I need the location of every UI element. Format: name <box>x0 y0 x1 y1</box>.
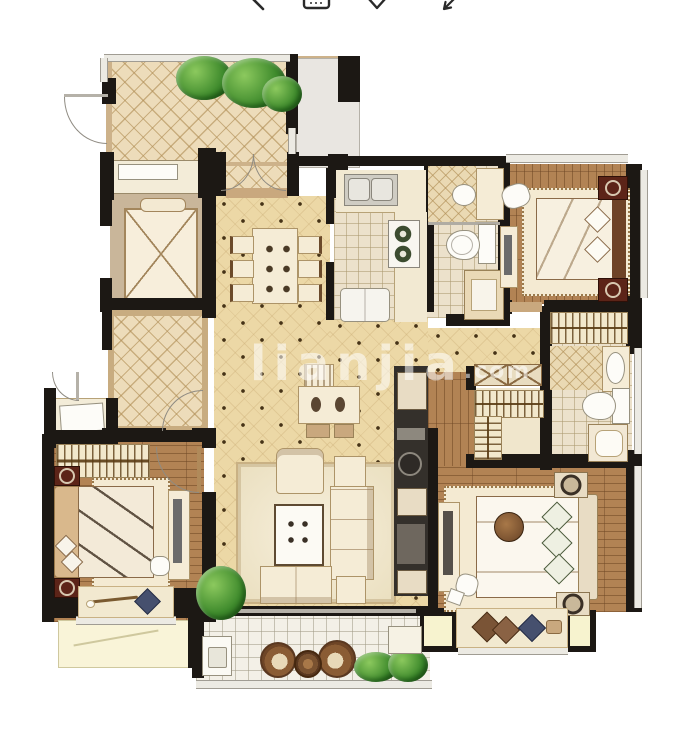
toilet-bowl-2 <box>582 392 616 420</box>
wall-segment <box>428 428 438 612</box>
back-icon[interactable] <box>252 0 263 9</box>
share-arrow-icon[interactable] <box>444 0 455 9</box>
round-chair <box>260 642 296 678</box>
nightstand <box>598 176 628 200</box>
bedroom3-chair <box>150 556 170 576</box>
x-cabinet-cell <box>474 364 508 386</box>
walkin-rack-top <box>474 390 544 418</box>
media-shelf <box>397 488 427 516</box>
heart-icon[interactable] <box>369 0 385 8</box>
wall-segment <box>46 430 216 442</box>
bedroom3-desk-strip <box>173 499 182 563</box>
porch-mat <box>59 402 105 433</box>
toolbar-fragment <box>0 0 690 14</box>
wall-segment <box>100 152 114 200</box>
walkin-rack-left <box>474 416 502 460</box>
nightstand-lamp <box>605 180 621 196</box>
media-shelf <box>397 428 425 440</box>
tea-table <box>298 386 360 424</box>
terrace-left-window <box>100 58 108 82</box>
tea-chair <box>304 364 334 388</box>
bedroom2-desk-strip <box>443 511 453 575</box>
washbasin <box>452 184 476 206</box>
dining-chair <box>230 260 254 278</box>
wall-segment <box>326 262 334 320</box>
closet-hangers <box>550 312 628 344</box>
nightstand-lamp <box>561 475 582 496</box>
toilet-bowl-inner <box>451 235 473 255</box>
nightstand-lamp <box>59 468 75 484</box>
media-wall <box>394 366 428 596</box>
bath-cabinet <box>464 270 504 320</box>
wall-segment <box>202 150 216 318</box>
bedroom1-bed <box>536 198 616 280</box>
foyer-cabinet <box>118 164 178 180</box>
stove-burner <box>394 245 412 263</box>
washbasin-2 <box>606 352 625 384</box>
bedroom1-headboard <box>612 196 626 280</box>
wall-segment <box>102 298 214 310</box>
speaker-icon <box>398 452 422 476</box>
bathroom2-right-window <box>634 348 642 454</box>
stove <box>388 220 420 268</box>
wall-segment <box>202 430 216 448</box>
window-box <box>424 616 452 646</box>
balcony-sliding-door <box>214 609 416 613</box>
bedroom2-headboard <box>578 494 598 600</box>
door-arc <box>52 372 79 401</box>
nightstand-lamp <box>59 580 75 596</box>
wicker-decor <box>494 512 524 542</box>
door-leaf <box>197 447 201 492</box>
bedroom1-desk-strip <box>504 235 512 275</box>
toilet-bowl <box>446 230 480 260</box>
sink-basin <box>371 178 393 201</box>
balcony-cabinet <box>388 626 422 654</box>
nightstand <box>54 466 80 486</box>
round-chair <box>318 640 356 678</box>
washer-drum <box>208 647 227 668</box>
tea-cup <box>311 397 321 412</box>
balcony-bottom-window <box>196 680 432 689</box>
wall-segment <box>102 312 112 350</box>
tea-bench <box>306 424 330 438</box>
media-shelf <box>397 372 427 410</box>
nightstand-2 <box>554 472 588 498</box>
door-leaf <box>76 372 79 400</box>
dining-chair <box>230 284 254 302</box>
washbasin-counter <box>476 168 504 220</box>
bedroom3-desk <box>168 490 190 580</box>
bedroom1-right-window <box>640 170 648 298</box>
door-leaf <box>64 94 108 97</box>
shell-decor <box>86 600 95 608</box>
ottoman <box>334 456 366 488</box>
side-table <box>336 576 366 604</box>
tea-bench <box>334 424 354 438</box>
door-arc <box>64 97 107 144</box>
dining-chair <box>298 284 322 302</box>
window-box <box>570 616 590 646</box>
dining-table <box>252 228 298 304</box>
loveseat <box>260 566 332 604</box>
dining-chair <box>298 260 322 278</box>
wall-segment <box>100 196 112 226</box>
round-table <box>294 650 322 678</box>
tv-screen <box>397 524 425 564</box>
armchair <box>276 448 324 494</box>
bay-basket <box>546 620 562 634</box>
terrace-right-window <box>288 128 296 154</box>
kitchen-sink <box>344 174 398 206</box>
bedroom1-top-window <box>506 154 628 163</box>
shower-area-2 <box>550 346 602 390</box>
nightstand-lamp <box>605 282 621 298</box>
bedroom3-bed <box>78 486 154 578</box>
dining-chair <box>230 236 254 254</box>
dining-chair <box>298 236 322 254</box>
wall-segment <box>338 56 360 102</box>
nightstand <box>598 278 628 302</box>
terrace-plant <box>262 76 302 112</box>
wall-segment <box>326 168 334 224</box>
media-shelf <box>397 570 427 594</box>
sofa <box>330 486 374 580</box>
ac-platform <box>58 620 192 668</box>
coffee-table <box>274 504 324 566</box>
dining-table-settings <box>257 235 291 295</box>
x-cabinet-cell <box>508 364 542 386</box>
bath-cabinet-inner <box>471 279 497 311</box>
living-room-plant <box>196 566 246 620</box>
elevator-door-bar <box>140 198 186 212</box>
bedroom2-right-window <box>634 466 642 608</box>
bedroom1-desk <box>500 226 518 288</box>
ac-platform-line <box>73 630 158 647</box>
fridge <box>340 288 390 322</box>
nightstand <box>54 578 80 598</box>
bathtub-inner <box>595 430 623 457</box>
floorplan-screenshot: lianjia .com <box>0 0 690 745</box>
sink-basin <box>348 178 370 201</box>
elevator-cab <box>124 208 198 300</box>
tea-cup <box>335 397 345 412</box>
wall-segment <box>292 156 506 166</box>
keyboard-icon[interactable] <box>304 0 329 8</box>
bathtub <box>588 424 628 462</box>
coffee-table-decor <box>284 516 308 550</box>
toilet-tank <box>478 224 496 264</box>
bedroom1-door-threshold <box>510 302 542 312</box>
washing-machine <box>202 636 232 676</box>
low-cabinet-x <box>474 364 542 386</box>
stove-burner <box>394 225 412 243</box>
